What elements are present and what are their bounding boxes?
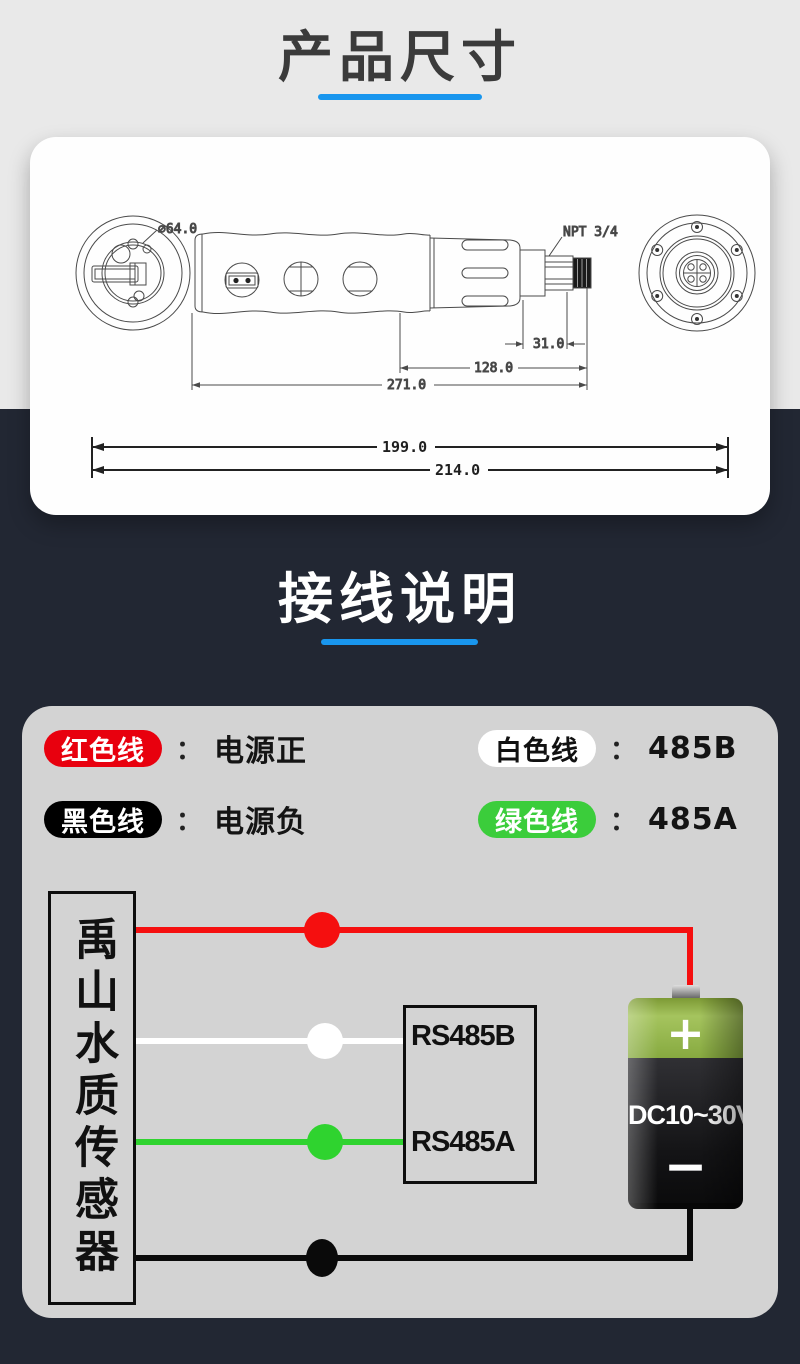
left-end-view: ⌀64.0 bbox=[76, 216, 197, 330]
wiring-title-underline bbox=[321, 639, 478, 645]
rs485a-label: RS485A bbox=[411, 1126, 515, 1159]
dimensions-title-underline bbox=[318, 94, 482, 100]
white-wire-node bbox=[307, 1023, 343, 1059]
battery-highlight bbox=[628, 998, 743, 1209]
battery: + DC10~30V − bbox=[628, 985, 743, 1210]
black-wire-node bbox=[306, 1239, 338, 1277]
sensor-label: 禹山水质传感器 bbox=[70, 916, 114, 1280]
red-wire-node bbox=[304, 912, 340, 948]
thread-leader-line bbox=[549, 237, 562, 256]
thread-label: NPT 3/4 bbox=[563, 225, 618, 240]
dimension-drawing-card: ⌀64.0 bbox=[30, 137, 770, 515]
diameter-leader-line bbox=[143, 230, 157, 243]
dim-271: 271.0 bbox=[192, 313, 587, 393]
wiring-diagram-card: 红色线 ： 电源正 白色线 ： 485B 黑色线 ： 电源负 绿色线 ： 485… bbox=[22, 706, 778, 1318]
wiring-section-title: 接线说明 bbox=[0, 566, 800, 632]
dim-199: 199.0 bbox=[92, 437, 728, 478]
right-end-view bbox=[639, 215, 755, 331]
diameter-label: ⌀64.0 bbox=[158, 222, 197, 237]
dim-199-label: 199.0 bbox=[382, 438, 427, 456]
dim-31-label: 31.0 bbox=[533, 337, 564, 352]
side-view-cap: NPT 3/4 bbox=[430, 225, 618, 308]
dim-271-label: 271.0 bbox=[387, 378, 426, 393]
dim-214-label: 214.0 bbox=[435, 461, 480, 479]
dim-31: 31.0 bbox=[505, 292, 585, 352]
dimension-drawing: ⌀64.0 bbox=[30, 137, 770, 515]
dim-128-label: 128.0 bbox=[474, 361, 513, 376]
rs485-box: RS485B RS485A bbox=[403, 1005, 537, 1184]
rs485b-label: RS485B bbox=[411, 1020, 515, 1053]
side-view-body bbox=[195, 232, 430, 313]
dim-214: 214.0 bbox=[92, 461, 728, 479]
dimensions-section-title: 产品尺寸 bbox=[0, 24, 800, 90]
sensor-box: 禹山水质传感器 bbox=[48, 891, 136, 1305]
black-wire bbox=[136, 1206, 690, 1258]
battery-body: + DC10~30V − bbox=[628, 998, 743, 1209]
green-wire-node bbox=[307, 1124, 343, 1160]
red-wire bbox=[136, 930, 690, 988]
